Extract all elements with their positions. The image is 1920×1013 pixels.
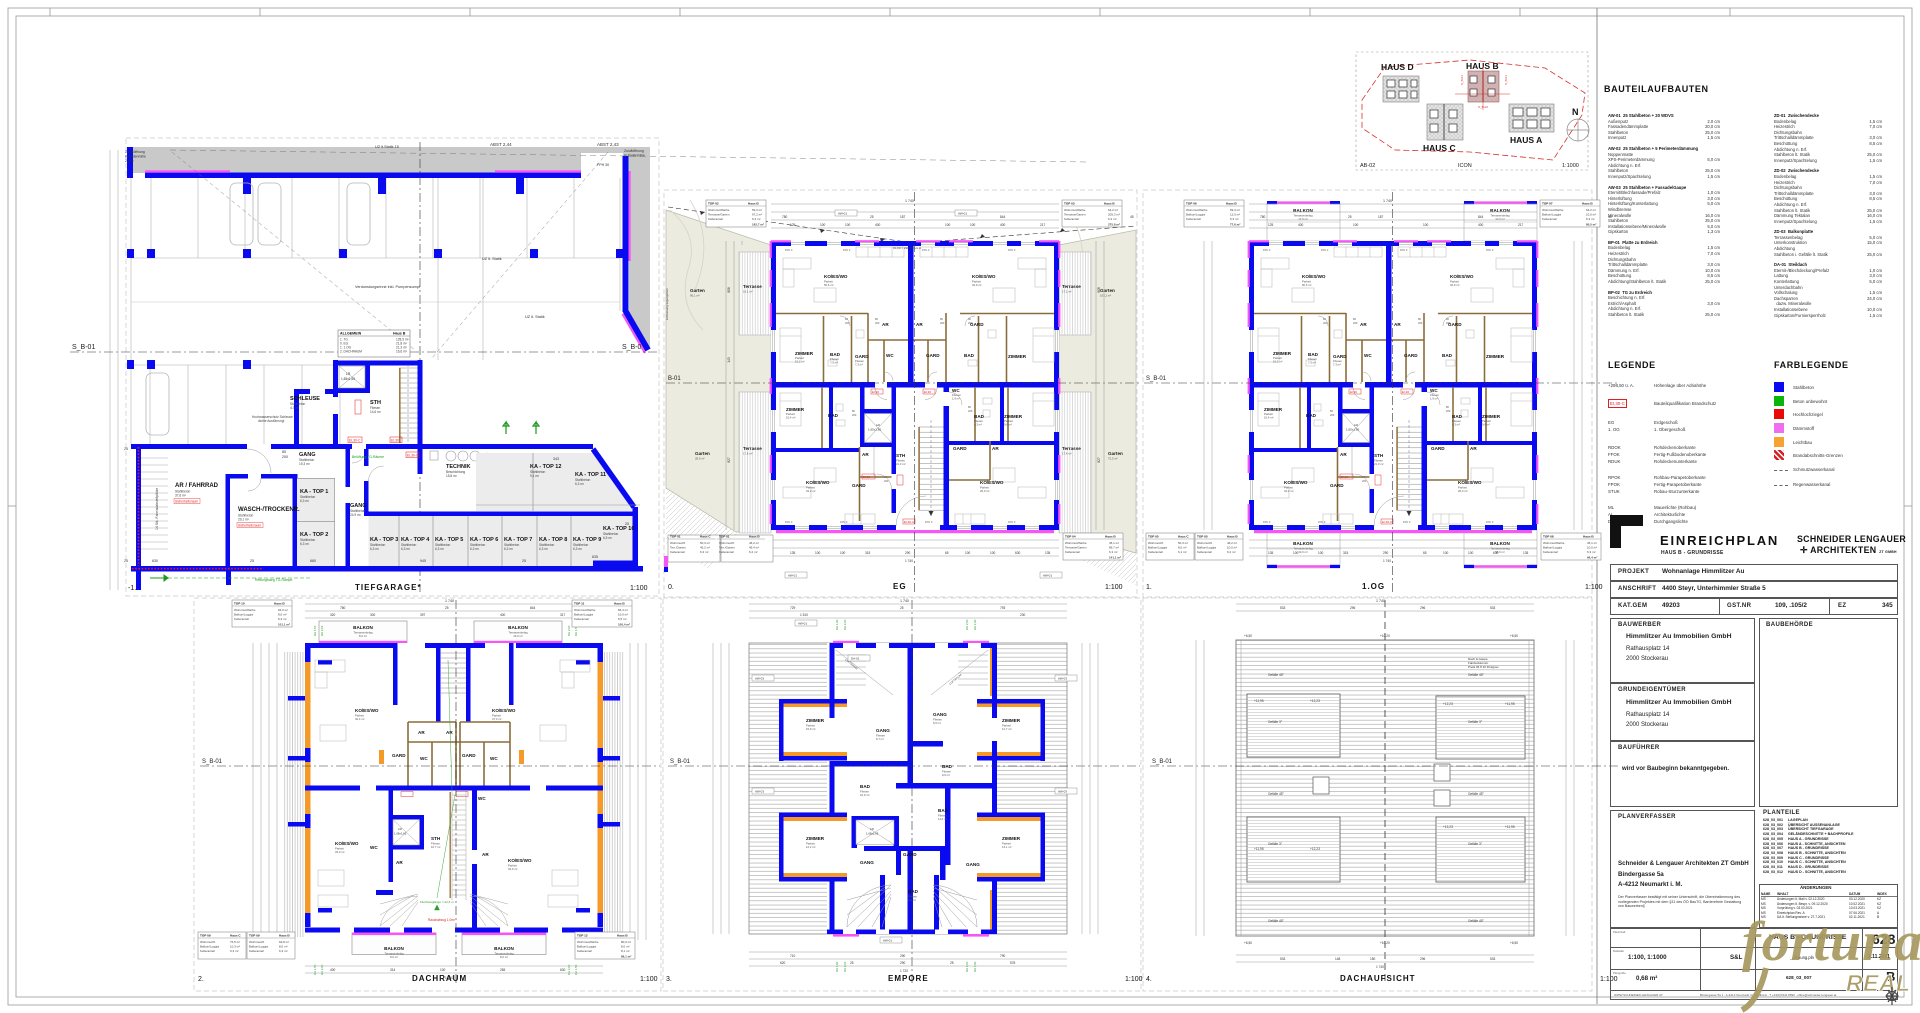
svg-text:45,1 m²: 45,1 m² xyxy=(1587,541,1597,545)
svg-text:BALKON: BALKON xyxy=(353,625,373,630)
svg-text:AR: AR xyxy=(446,730,453,735)
svg-text:25: 25 xyxy=(625,522,629,526)
svg-text:Balkon/Loggia: Balkon/Loggia xyxy=(1197,546,1216,550)
svg-text:BAD: BAD xyxy=(942,764,953,769)
svg-text:25: 25 xyxy=(445,606,449,610)
svg-text:808: 808 xyxy=(1097,287,1101,293)
svg-text:Kelleranteil: Kelleranteil xyxy=(249,949,264,953)
svg-text:Wohnnutzfläche: Wohnnutzfläche xyxy=(1186,208,1208,212)
svg-text:50,3 m²: 50,3 m² xyxy=(700,541,710,545)
svg-text:KO/ES/WO: KO/ES/WO xyxy=(335,841,359,846)
svg-text:200: 200 xyxy=(282,455,288,459)
svg-text:80,5 m²: 80,5 m² xyxy=(1586,223,1596,227)
svg-text:S_B-01: S_B-01 xyxy=(1152,759,1173,765)
svg-text:Kelleranteil: Kelleranteil xyxy=(234,617,249,621)
svg-text:Gefälle 45°: Gefälle 45° xyxy=(1268,673,1285,677)
svg-text:8,0 m²: 8,0 m² xyxy=(279,945,288,949)
svg-text:100: 100 xyxy=(1318,551,1324,555)
svg-text:42,4 m²: 42,4 m² xyxy=(355,717,365,721)
svg-text:630: 630 xyxy=(1493,551,1499,555)
svg-text:AW-01: AW-01 xyxy=(958,212,967,216)
svg-text:16,7 m²: 16,7 m² xyxy=(431,845,441,849)
svg-text:+6,50: +6,50 xyxy=(1244,941,1252,945)
svg-text:Terrasse: Terrasse xyxy=(743,446,762,451)
svg-text:Sicherheitsraum: Sicherheitsraum xyxy=(175,500,198,504)
svg-text:4,7 m²: 4,7 m² xyxy=(290,406,299,410)
svg-text:25: 25 xyxy=(900,606,904,610)
svg-text:+11,95: +11,95 xyxy=(1505,702,1515,706)
svg-text:Wohnnutzfl.: Wohnnutzfl. xyxy=(719,541,735,545)
svg-text:6,7 m²: 6,7 m² xyxy=(876,737,884,741)
svg-text:EG: EG xyxy=(893,582,907,591)
svg-text:100: 100 xyxy=(845,223,851,227)
svg-text:6,2 m²: 6,2 m² xyxy=(1227,550,1236,554)
svg-text:AW-03: AW-03 xyxy=(755,790,764,794)
svg-text:Gefälle 3°: Gefälle 3° xyxy=(1468,842,1483,846)
svg-text:Gefälle 45°: Gefälle 45° xyxy=(1468,919,1485,923)
svg-text:103,2 m²: 103,2 m² xyxy=(1100,294,1111,298)
svg-text:37,6 m²: 37,6 m² xyxy=(175,494,186,498)
svg-text:Haus B: Haus B xyxy=(279,934,290,938)
svg-text:317: 317 xyxy=(560,613,566,617)
svg-text:8,1 m²: 8,1 m² xyxy=(621,949,630,953)
svg-text:Rettungsweg TG-Rampe: Rettungsweg TG-Rampe xyxy=(255,578,293,582)
svg-text:DACHRAUM: DACHRAUM xyxy=(412,974,467,983)
svg-text:ZIMMER: ZIMMER xyxy=(1002,836,1021,841)
svg-text:RH 2,00: RH 2,00 xyxy=(965,619,969,630)
svg-text:BALKON: BALKON xyxy=(508,625,528,630)
svg-text:BAD: BAD xyxy=(938,808,949,813)
svg-text:0.: 0. xyxy=(668,584,674,591)
svg-text:8,0 m²: 8,0 m² xyxy=(359,634,367,638)
svg-text:125: 125 xyxy=(1268,223,1274,227)
svg-text:Terr./Garten: Terr./Garten xyxy=(719,546,735,550)
svg-text:533: 533 xyxy=(1490,606,1496,610)
svg-text:1:100: 1:100 xyxy=(1125,976,1143,983)
svg-text:17,1 m²: 17,1 m² xyxy=(1062,290,1072,294)
svg-text:84,4 m²: 84,4 m² xyxy=(618,608,628,612)
svg-text:EI,30-C: EI,30-C xyxy=(407,454,419,458)
svg-text:290: 290 xyxy=(905,551,911,555)
svg-text:Balkon/Loggia: Balkon/Loggia xyxy=(1542,213,1561,217)
svg-text:400: 400 xyxy=(1298,223,1304,227)
svg-text:6,3 m²: 6,3 m² xyxy=(1108,217,1117,221)
svg-text:25: 25 xyxy=(250,559,254,563)
svg-text:290: 290 xyxy=(1383,551,1389,555)
svg-text:1 740: 1 740 xyxy=(905,559,913,563)
svg-text:6,1 m²: 6,1 m² xyxy=(1178,550,1187,554)
svg-text:RH 2,00: RH 2,00 xyxy=(320,625,324,636)
svg-text:TIEFGARAGE*: TIEFGARAGE* xyxy=(355,583,422,592)
svg-text:Haus B: Haus B xyxy=(1582,202,1593,206)
svg-text:TOP 06: TOP 06 xyxy=(1186,202,1197,206)
svg-text:+6,50: +6,50 xyxy=(1510,634,1518,638)
svg-text:Kelleranteil: Kelleranteil xyxy=(719,550,734,554)
svg-text:Zuluftöffnung: Zuluftöffnung xyxy=(125,150,145,154)
svg-text:6,5 m²: 6,5 m² xyxy=(603,536,612,540)
svg-text:11,6 m²: 11,6 m² xyxy=(938,817,947,821)
svg-text:10,9 m²: 10,9 m² xyxy=(860,793,870,797)
svg-text:DA-01: DA-01 xyxy=(851,657,860,661)
svg-text:TOP 10: TOP 10 xyxy=(234,602,245,606)
svg-text:86,1 m²: 86,1 m² xyxy=(621,955,631,959)
svg-text:6,3 m²: 6,3 m² xyxy=(300,542,309,546)
svg-text:Garten: Garten xyxy=(690,288,705,293)
svg-text:1 740: 1 740 xyxy=(1383,199,1392,203)
svg-text:533: 533 xyxy=(1280,606,1286,610)
svg-text:77,6 m²: 77,6 m² xyxy=(1230,223,1240,227)
svg-text:RH 2,00: RH 2,00 xyxy=(567,625,571,636)
svg-text:1 740: 1 740 xyxy=(445,599,454,603)
svg-text:Kelleranteil: Kelleranteil xyxy=(1542,217,1557,221)
svg-text:N: N xyxy=(1572,107,1579,117)
svg-text:ABST 2,43: ABST 2,43 xyxy=(597,142,619,147)
svg-text:10,3 m²: 10,3 m² xyxy=(230,945,240,949)
svg-text:1 720: 1 720 xyxy=(900,969,908,973)
svg-text:6,3 m²: 6,3 m² xyxy=(435,547,444,551)
svg-text:2.: 2. xyxy=(198,976,204,983)
svg-text:Haus B: Haus B xyxy=(1583,535,1594,539)
svg-text:101,1 m²: 101,1 m² xyxy=(278,623,290,627)
svg-text:1:100: 1:100 xyxy=(640,976,658,983)
svg-text:2,4m²: 2,4m² xyxy=(125,159,135,163)
svg-text:10,0 m²: 10,0 m² xyxy=(1298,550,1308,554)
svg-text:8,0 m²: 8,0 m² xyxy=(621,945,630,949)
svg-text:25: 25 xyxy=(870,215,874,219)
svg-text:KO/ES/WO: KO/ES/WO xyxy=(492,708,516,713)
svg-text:+10,20: +10,20 xyxy=(1380,634,1390,638)
svg-text:Wohnnutzfläche: Wohnnutzfläche xyxy=(1543,541,1565,545)
svg-text:400: 400 xyxy=(500,613,506,617)
svg-text:780: 780 xyxy=(1260,215,1266,219)
svg-text:578: 578 xyxy=(1010,961,1016,965)
svg-text:100: 100 xyxy=(1423,223,1429,227)
svg-text:1.: 1. xyxy=(1146,584,1152,591)
svg-text:Kelleranteil: Kelleranteil xyxy=(1065,550,1080,554)
svg-text:RH 1,50: RH 1,50 xyxy=(313,625,317,636)
svg-text:ALLGEMEIN: ALLGEMEIN xyxy=(340,332,362,336)
svg-text:ZIMMER: ZIMMER xyxy=(806,836,825,841)
svg-text:Haus B: Haus B xyxy=(614,602,625,606)
svg-text:100: 100 xyxy=(965,551,971,555)
svg-text:BAD: BAD xyxy=(860,784,871,789)
svg-text:Kelleranteil: Kelleranteil xyxy=(1148,550,1163,554)
svg-text:630: 630 xyxy=(152,559,158,563)
svg-text:TOP 08: TOP 08 xyxy=(1543,535,1554,539)
svg-text:TOP 02: TOP 02 xyxy=(708,202,719,206)
svg-text:Haus C: Haus C xyxy=(230,934,241,938)
svg-text:AR: AR xyxy=(396,860,403,865)
svg-text:+6,50: +6,50 xyxy=(1510,941,1518,945)
svg-text:12,0 m²: 12,0 m² xyxy=(1298,217,1308,221)
svg-text:LR: LR xyxy=(346,372,351,376)
svg-text:in Bodennähe: in Bodennähe xyxy=(125,155,146,159)
svg-text:Gefälle 3°: Gefälle 3° xyxy=(1268,720,1283,724)
svg-text:Haus B: Haus B xyxy=(274,602,285,606)
svg-text:100: 100 xyxy=(1353,223,1359,227)
svg-text:6,5 m²: 6,5 m² xyxy=(618,617,627,621)
svg-text:Haus C: Haus C xyxy=(1178,535,1189,539)
svg-text:135: 135 xyxy=(1523,551,1529,555)
svg-text:300: 300 xyxy=(370,613,376,617)
svg-text:Gefälle 45°: Gefälle 45° xyxy=(1468,673,1485,677)
svg-text:HAUS B: HAUS B xyxy=(1466,61,1499,71)
svg-text:+11,95: +11,95 xyxy=(1254,847,1264,851)
svg-text:8,0 m²: 8,0 m² xyxy=(500,955,508,959)
svg-text:ZIMMER: ZIMMER xyxy=(806,718,825,723)
svg-text:10,0 m²: 10,0 m² xyxy=(513,634,523,638)
svg-text:RH 1,90: RH 1,90 xyxy=(835,961,839,972)
svg-text:EI,30-C: EI,30-C xyxy=(349,439,361,443)
svg-text:EMPORE: EMPORE xyxy=(888,974,929,983)
svg-text:19,1 m²: 19,1 m² xyxy=(743,290,753,294)
svg-text:6,3 m²: 6,3 m² xyxy=(504,547,513,551)
svg-text:533: 533 xyxy=(1280,957,1286,961)
svg-text:64,2 m²: 64,2 m² xyxy=(1586,208,1596,212)
svg-text:ZIMMER: ZIMMER xyxy=(1002,718,1021,723)
svg-text:dichte Ausführung!: dichte Ausführung! xyxy=(258,419,285,423)
svg-text:Wohnnutzfläche: Wohnnutzfläche xyxy=(574,608,596,612)
svg-text:808: 808 xyxy=(727,287,731,293)
svg-text:WASCH-/TROCKENR.: WASCH-/TROCKENR. xyxy=(238,507,300,513)
svg-text:1,68x1,65: 1,68x1,65 xyxy=(866,832,879,836)
svg-text:16,6 m²: 16,6 m² xyxy=(396,350,407,354)
svg-text:Garten: Garten xyxy=(1108,451,1123,456)
svg-text:275,8 m²: 275,8 m² xyxy=(1108,223,1120,227)
svg-text:19,3 m²: 19,3 m² xyxy=(299,462,310,466)
svg-text:Fluchtweglänge = 22,6 m: Fluchtweglänge = 22,6 m xyxy=(420,900,454,904)
svg-text:343: 343 xyxy=(553,457,559,461)
svg-text:TOP 12: TOP 12 xyxy=(577,934,588,938)
svg-text:Terrasse/Garten: Terrasse/Garten xyxy=(1064,213,1086,217)
svg-text:25: 25 xyxy=(124,447,128,451)
svg-text:BALKON: BALKON xyxy=(384,946,404,951)
svg-text:12,7 m²: 12,7 m² xyxy=(1002,727,1012,731)
svg-text:34,6 m²: 34,6 m² xyxy=(508,867,518,871)
svg-text:400: 400 xyxy=(1478,223,1484,227)
svg-text:1 740: 1 740 xyxy=(900,599,909,603)
svg-text:Haus B: Haus B xyxy=(1104,202,1115,206)
svg-text:Wohnnutzfläche: Wohnnutzfläche xyxy=(708,208,730,212)
svg-text:Balkon/Loggia: Balkon/Loggia xyxy=(1186,213,1205,217)
svg-text:10,0 m²: 10,0 m² xyxy=(1227,546,1237,550)
svg-text:162,7 m²: 162,7 m² xyxy=(752,223,764,227)
svg-text:B-01: B-01 xyxy=(668,376,681,382)
svg-text:+12,23: +12,23 xyxy=(1443,825,1453,829)
svg-text:Wohnnutzfl.: Wohnnutzfl. xyxy=(249,940,265,944)
svg-text:6,3 m²: 6,3 m² xyxy=(230,949,239,953)
svg-text:1:100: 1:100 xyxy=(630,585,648,592)
svg-text:844: 844 xyxy=(1000,215,1006,219)
svg-text:6,5 m²: 6,5 m² xyxy=(933,721,941,725)
svg-text:315: 315 xyxy=(1343,551,1349,555)
svg-text:1:100: 1:100 xyxy=(1105,584,1123,591)
svg-text:230: 230 xyxy=(1020,613,1026,617)
svg-text:Wohnnutzfl.: Wohnnutzfl. xyxy=(200,940,216,944)
svg-text:400: 400 xyxy=(875,223,881,227)
svg-text:15,9 m²: 15,9 m² xyxy=(806,727,816,731)
svg-text:AW-03: AW-03 xyxy=(755,677,764,681)
svg-text:6,3 m²: 6,3 m² xyxy=(575,482,584,486)
svg-text:Haus C: Haus C xyxy=(700,535,711,539)
svg-text:Gefälle 3°: Gefälle 3° xyxy=(1468,720,1483,724)
svg-text:HAUS C: HAUS C xyxy=(1423,143,1456,153)
svg-text:135: 135 xyxy=(1268,551,1274,555)
svg-text:296: 296 xyxy=(1420,606,1426,610)
svg-text:100: 100 xyxy=(1443,551,1449,555)
svg-text:100: 100 xyxy=(990,551,996,555)
svg-text:1,68x1,65: 1,68x1,65 xyxy=(394,832,407,836)
svg-text:Kelleranteil: Kelleranteil xyxy=(1064,217,1079,221)
svg-text:100: 100 xyxy=(840,551,846,555)
svg-text:Haus B: Haus B xyxy=(617,934,628,938)
svg-text:HAUS A: HAUS A xyxy=(1510,135,1542,145)
svg-text:Balkon/Loggia: Balkon/Loggia xyxy=(234,613,253,617)
svg-text:290: 290 xyxy=(900,961,906,965)
svg-text:187: 187 xyxy=(900,215,906,219)
svg-text:59,3 m²: 59,3 m² xyxy=(752,208,762,212)
svg-text:1 740: 1 740 xyxy=(1383,559,1391,563)
svg-text:BALKON: BALKON xyxy=(1293,541,1313,546)
svg-text:945: 945 xyxy=(420,559,426,563)
svg-text:45,1 m²: 45,1 m² xyxy=(1109,541,1119,545)
svg-text:25: 25 xyxy=(522,559,526,563)
svg-text:AW-03: AW-03 xyxy=(1058,790,1067,794)
svg-text:GANG: GANG xyxy=(860,860,874,865)
svg-text:25: 25 xyxy=(1348,215,1352,219)
svg-text:59,3 m²: 59,3 m² xyxy=(1230,208,1240,212)
svg-text:1.OG: 1.OG xyxy=(1362,582,1385,591)
svg-text:1 740: 1 740 xyxy=(905,199,914,203)
svg-text:AR: AR xyxy=(482,852,489,857)
svg-text:Prefa 06 P.10 Zinkgrau: Prefa 06 P.10 Zinkgrau xyxy=(1468,665,1499,669)
svg-text:Kelleranteil: Kelleranteil xyxy=(200,949,215,953)
svg-text:29,1 m²: 29,1 m² xyxy=(238,518,249,522)
svg-text:AW-01: AW-01 xyxy=(798,622,807,626)
svg-text:Balkon/Loggia: Balkon/Loggia xyxy=(577,945,596,949)
svg-text:Kelleranteil: Kelleranteil xyxy=(1186,217,1201,221)
svg-text:+12,23: +12,23 xyxy=(1310,847,1320,851)
svg-text:BALKON: BALKON xyxy=(1490,541,1510,546)
svg-text:AW-03: AW-03 xyxy=(1058,677,1067,681)
svg-text:+12,23: +12,23 xyxy=(1310,699,1320,703)
svg-text:6,3 m²: 6,3 m² xyxy=(1109,550,1118,554)
svg-text:844: 844 xyxy=(530,606,536,610)
svg-text:827: 827 xyxy=(1097,457,1101,463)
svg-text:135: 135 xyxy=(1045,551,1051,555)
svg-text:TOP 05: TOP 05 xyxy=(1197,535,1208,539)
svg-text:100: 100 xyxy=(970,223,976,227)
svg-text:135: 135 xyxy=(790,551,796,555)
svg-text:TOP 07: TOP 07 xyxy=(1542,202,1553,206)
svg-text:Wohnnutzfläche: Wohnnutzfläche xyxy=(1064,208,1086,212)
svg-text:6,3 m²: 6,3 m² xyxy=(700,550,709,554)
svg-text:296: 296 xyxy=(1350,606,1356,610)
svg-text:KO/ES/WO: KO/ES/WO xyxy=(355,708,379,713)
svg-text:150: 150 xyxy=(1370,957,1376,961)
svg-text:Kelleranteil: Kelleranteil xyxy=(708,217,723,221)
svg-text:Balkon/Loggia: Balkon/Loggia xyxy=(200,945,219,949)
svg-text:790: 790 xyxy=(1000,954,1006,958)
svg-text:Wohnnutzfläche: Wohnnutzfläche xyxy=(577,940,599,944)
svg-text:45,2 m²: 45,2 m² xyxy=(700,546,710,550)
svg-text:46,2 m²: 46,2 m² xyxy=(749,541,759,545)
svg-text:320: 320 xyxy=(330,613,336,617)
svg-text:100: 100 xyxy=(440,968,446,972)
svg-text:17,4 m²: 17,4 m² xyxy=(1062,452,1072,456)
svg-text:125: 125 xyxy=(790,223,796,227)
svg-text:217: 217 xyxy=(1518,223,1524,227)
svg-text:UZ lt.Statik 15: UZ lt.Statik 15 xyxy=(375,145,399,149)
svg-text:205,3 m²: 205,3 m² xyxy=(1108,213,1120,217)
svg-text:Haus B: Haus B xyxy=(1105,535,1116,539)
svg-text:TOP 09: TOP 09 xyxy=(200,934,211,938)
svg-text:6,3 m²: 6,3 m² xyxy=(539,547,548,551)
svg-text:Haus B: Haus B xyxy=(1226,202,1237,206)
svg-text:TOP 09: TOP 09 xyxy=(249,934,260,938)
svg-text:Kelleranteil: Kelleranteil xyxy=(1543,550,1558,554)
svg-text:6,3 m²: 6,3 m² xyxy=(573,547,582,551)
svg-text:S_B-01: S_B-01 xyxy=(670,759,691,765)
svg-text:64,2 m²: 64,2 m² xyxy=(1108,208,1118,212)
svg-text:89,7 m²: 89,7 m² xyxy=(1109,546,1119,550)
svg-text:1:1000: 1:1000 xyxy=(1562,163,1579,169)
svg-text:WC: WC xyxy=(420,756,428,761)
svg-text:Terrasse/Garten: Terrasse/Garten xyxy=(1065,546,1087,550)
svg-text:Belüftung TG-Räume: Belüftung TG-Räume xyxy=(352,455,384,459)
svg-text:in Bodennähe: in Bodennähe xyxy=(624,154,645,158)
svg-text:6,3 m²: 6,3 m² xyxy=(470,547,479,551)
svg-text:400: 400 xyxy=(330,968,336,972)
svg-text:WC: WC xyxy=(490,756,498,761)
svg-text:Rauchabzug 1,0m²: Rauchabzug 1,0m² xyxy=(428,918,455,922)
svg-text:85: 85 xyxy=(282,450,286,454)
svg-text:TOP 11: TOP 11 xyxy=(574,602,585,606)
svg-text:65: 65 xyxy=(945,551,949,555)
svg-text:TOP 05: TOP 05 xyxy=(1148,535,1159,539)
svg-text:S_B-01: S_B-01 xyxy=(1460,75,1464,85)
svg-text:296: 296 xyxy=(1420,957,1426,961)
svg-text:GARD: GARD xyxy=(462,753,476,758)
svg-text:1,65x1,65: 1,65x1,65 xyxy=(341,377,355,381)
svg-text:45: 45 xyxy=(1130,215,1134,219)
svg-text:GANG: GANG xyxy=(876,728,890,733)
svg-text:10,0 m²: 10,0 m² xyxy=(618,613,628,617)
svg-text:TOP 03: TOP 03 xyxy=(1064,202,1075,206)
svg-text:17,6 m²: 17,6 m² xyxy=(743,452,753,456)
svg-text:Wohnnutzfläche: Wohnnutzfläche xyxy=(1542,208,1564,212)
svg-text:HAUS D: HAUS D xyxy=(1381,62,1414,72)
svg-text:TOP 01: TOP 01 xyxy=(719,535,730,539)
svg-text:100: 100 xyxy=(815,551,821,555)
svg-text:TOP 01: TOP 01 xyxy=(670,535,681,539)
svg-text:8,0 m²: 8,0 m² xyxy=(278,613,287,617)
svg-text:Terrasse: Terrasse xyxy=(1062,446,1081,451)
svg-text:6,3 m²: 6,3 m² xyxy=(370,547,379,551)
svg-text:S_B-01: S_B-01 xyxy=(202,759,223,765)
svg-text:6,3 m²: 6,3 m² xyxy=(401,547,410,551)
svg-text:AR: AR xyxy=(418,730,425,735)
svg-text:+11,95: +11,95 xyxy=(1254,699,1264,703)
svg-text:45,4 m²: 45,4 m² xyxy=(749,546,759,550)
svg-text:Balkon/Loggia: Balkon/Loggia xyxy=(574,613,593,617)
svg-text:RH 2,00: RH 2,00 xyxy=(965,961,969,972)
svg-text:Balkon/Loggia: Balkon/Loggia xyxy=(1543,546,1562,550)
svg-text:780: 780 xyxy=(782,215,788,219)
svg-text:FPH 30: FPH 30 xyxy=(597,163,609,167)
svg-text:S_B-0: S_B-0 xyxy=(622,344,642,351)
svg-text:ABST 2,44: ABST 2,44 xyxy=(490,142,512,147)
